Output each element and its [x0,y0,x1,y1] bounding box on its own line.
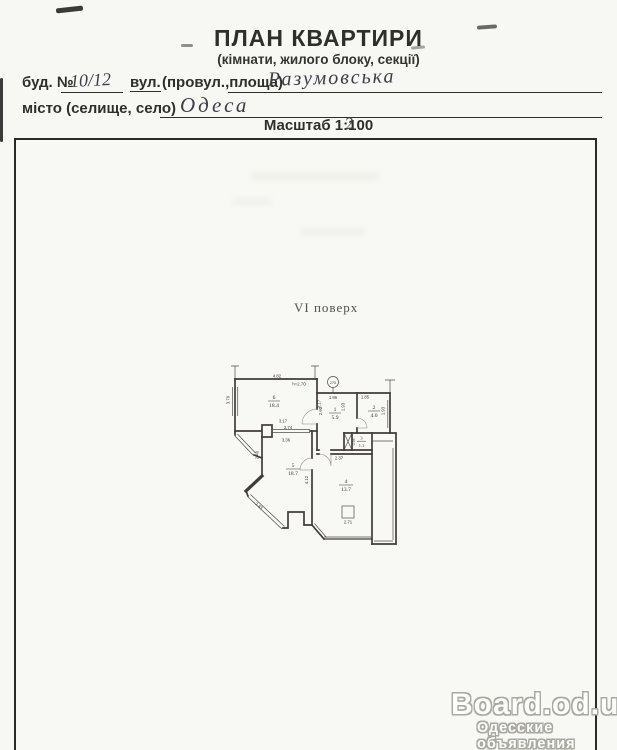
dimension-label: 2.83 [254,501,264,511]
watermark-logo: Board.od.ua [451,688,617,722]
room-number: 2 [373,405,376,411]
room-area: 1.1 [359,443,365,448]
field-underline [61,92,123,93]
dimension-label: 2.60 [318,406,323,415]
building-number-handwritten-value: 10/12 [69,69,111,92]
room-number: 1 [334,407,337,413]
page-subtitle: (кімнати, жилого блоку, секції) [0,52,617,67]
watermark-subtitle: Одесские объявления [477,720,617,750]
vent-shaft-square [342,506,354,518]
dimension-label: 2.49 [255,450,260,459]
street-handwritten-value: Разумовська [268,65,396,91]
scale-label: Масштаб 1: [264,117,348,134]
dimension-label: 2.37 [335,456,344,461]
scan-ghost-smudge [232,198,272,205]
room-number: 6 [273,395,276,401]
scan-ghost-smudge [250,172,380,181]
scale-line: Масштаб 1:1200 [0,117,617,134]
page-title: ПЛАН КВАРТИРИ [0,25,617,52]
room-area: 4.0 [371,413,378,419]
city-label: місто (селище, село) [22,100,176,117]
field-underline [228,92,602,93]
city-handwritten-value: Одеса [180,93,249,118]
dimension-label: h=2.70 [292,382,306,387]
room-number: 3 [360,436,363,441]
dimension-label: 0.98 [352,439,356,446]
dimension-label: 3.17 [279,419,288,424]
room-number: 4 [345,479,348,485]
scan-artifact [56,6,83,14]
street-label: вул. [130,74,161,92]
room-area: 13.7 [341,487,351,493]
building-number-label: буд. № [22,74,74,91]
room-area: 5.9 [332,415,339,421]
dimension-label: 3.36 [282,438,291,443]
street-sublabel: (провул.,площа) [162,74,283,91]
dimension-label: 1.93 [341,402,346,411]
dimension-label: 1.96 [329,395,338,400]
floor-label: VI поверх [294,300,358,316]
dimension-label: 3.79 [226,395,231,404]
scanned-document-page: ПЛАН КВАРТИРИ (кімнати, жилого блоку, се… [0,0,617,750]
scan-ghost-smudge [300,228,366,236]
dimension-label: 1.93 [381,406,386,415]
dimension-label: 4.12 [304,475,309,484]
room-area: 18.4 [269,403,279,409]
apartment-number: 275 [330,381,336,385]
dimension-label: 1.85 [361,395,370,400]
walls [235,379,396,544]
dimension-label: 2.71 [344,520,353,525]
dimension-label: 2.74 [284,425,293,430]
floor-plan: 6 18.4 1 5.9 2 4.0 3 1.1 5 18.7 4 13.7 2… [222,358,412,558]
dimension-label: 4.82 [273,374,282,379]
scale-suffix: 00 [356,117,373,134]
room-number: 5 [292,463,295,469]
room-area: 18.7 [288,471,298,477]
